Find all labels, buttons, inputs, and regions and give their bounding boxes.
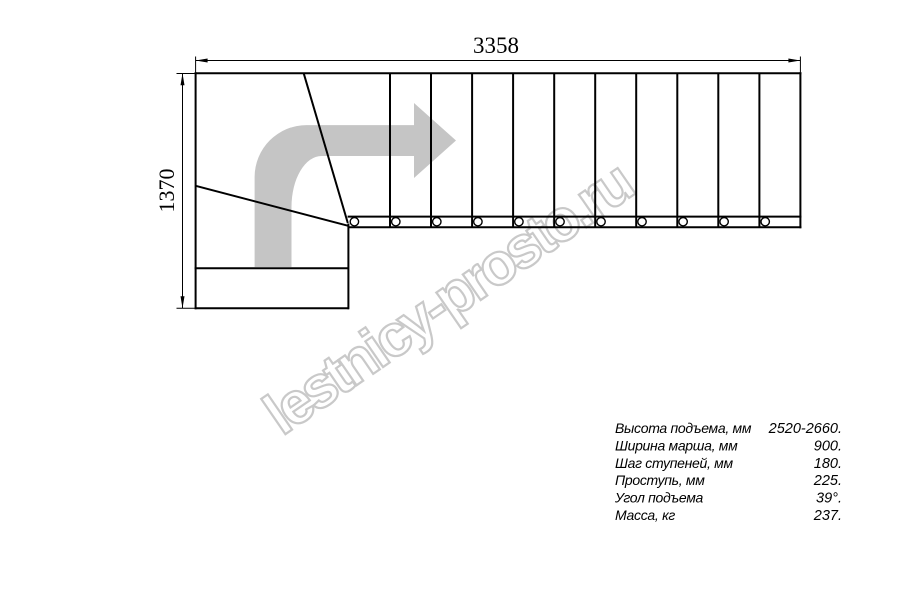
svg-text:237.: 237.: [813, 508, 842, 524]
svg-text:39°.: 39°.: [816, 491, 842, 507]
svg-text:225.: 225.: [813, 473, 842, 489]
svg-text:Угол подъема: Угол подъема: [614, 490, 704, 506]
svg-text:Высота подъема, мм: Высота подъема, мм: [615, 420, 752, 436]
svg-text:3358: 3358: [473, 33, 519, 58]
svg-text:900.: 900.: [814, 438, 842, 454]
svg-text:1370: 1370: [154, 169, 179, 213]
svg-text:Масса, кг: Масса, кг: [615, 507, 675, 523]
svg-text:Проступь, мм: Проступь, мм: [615, 472, 705, 488]
svg-text:Ширина марша, мм: Ширина марша, мм: [615, 437, 738, 453]
svg-text:180.: 180.: [814, 456, 842, 472]
svg-text:2520-2660.: 2520-2660.: [768, 421, 842, 437]
svg-text:Шаг ступеней, мм: Шаг ступеней, мм: [615, 455, 733, 471]
